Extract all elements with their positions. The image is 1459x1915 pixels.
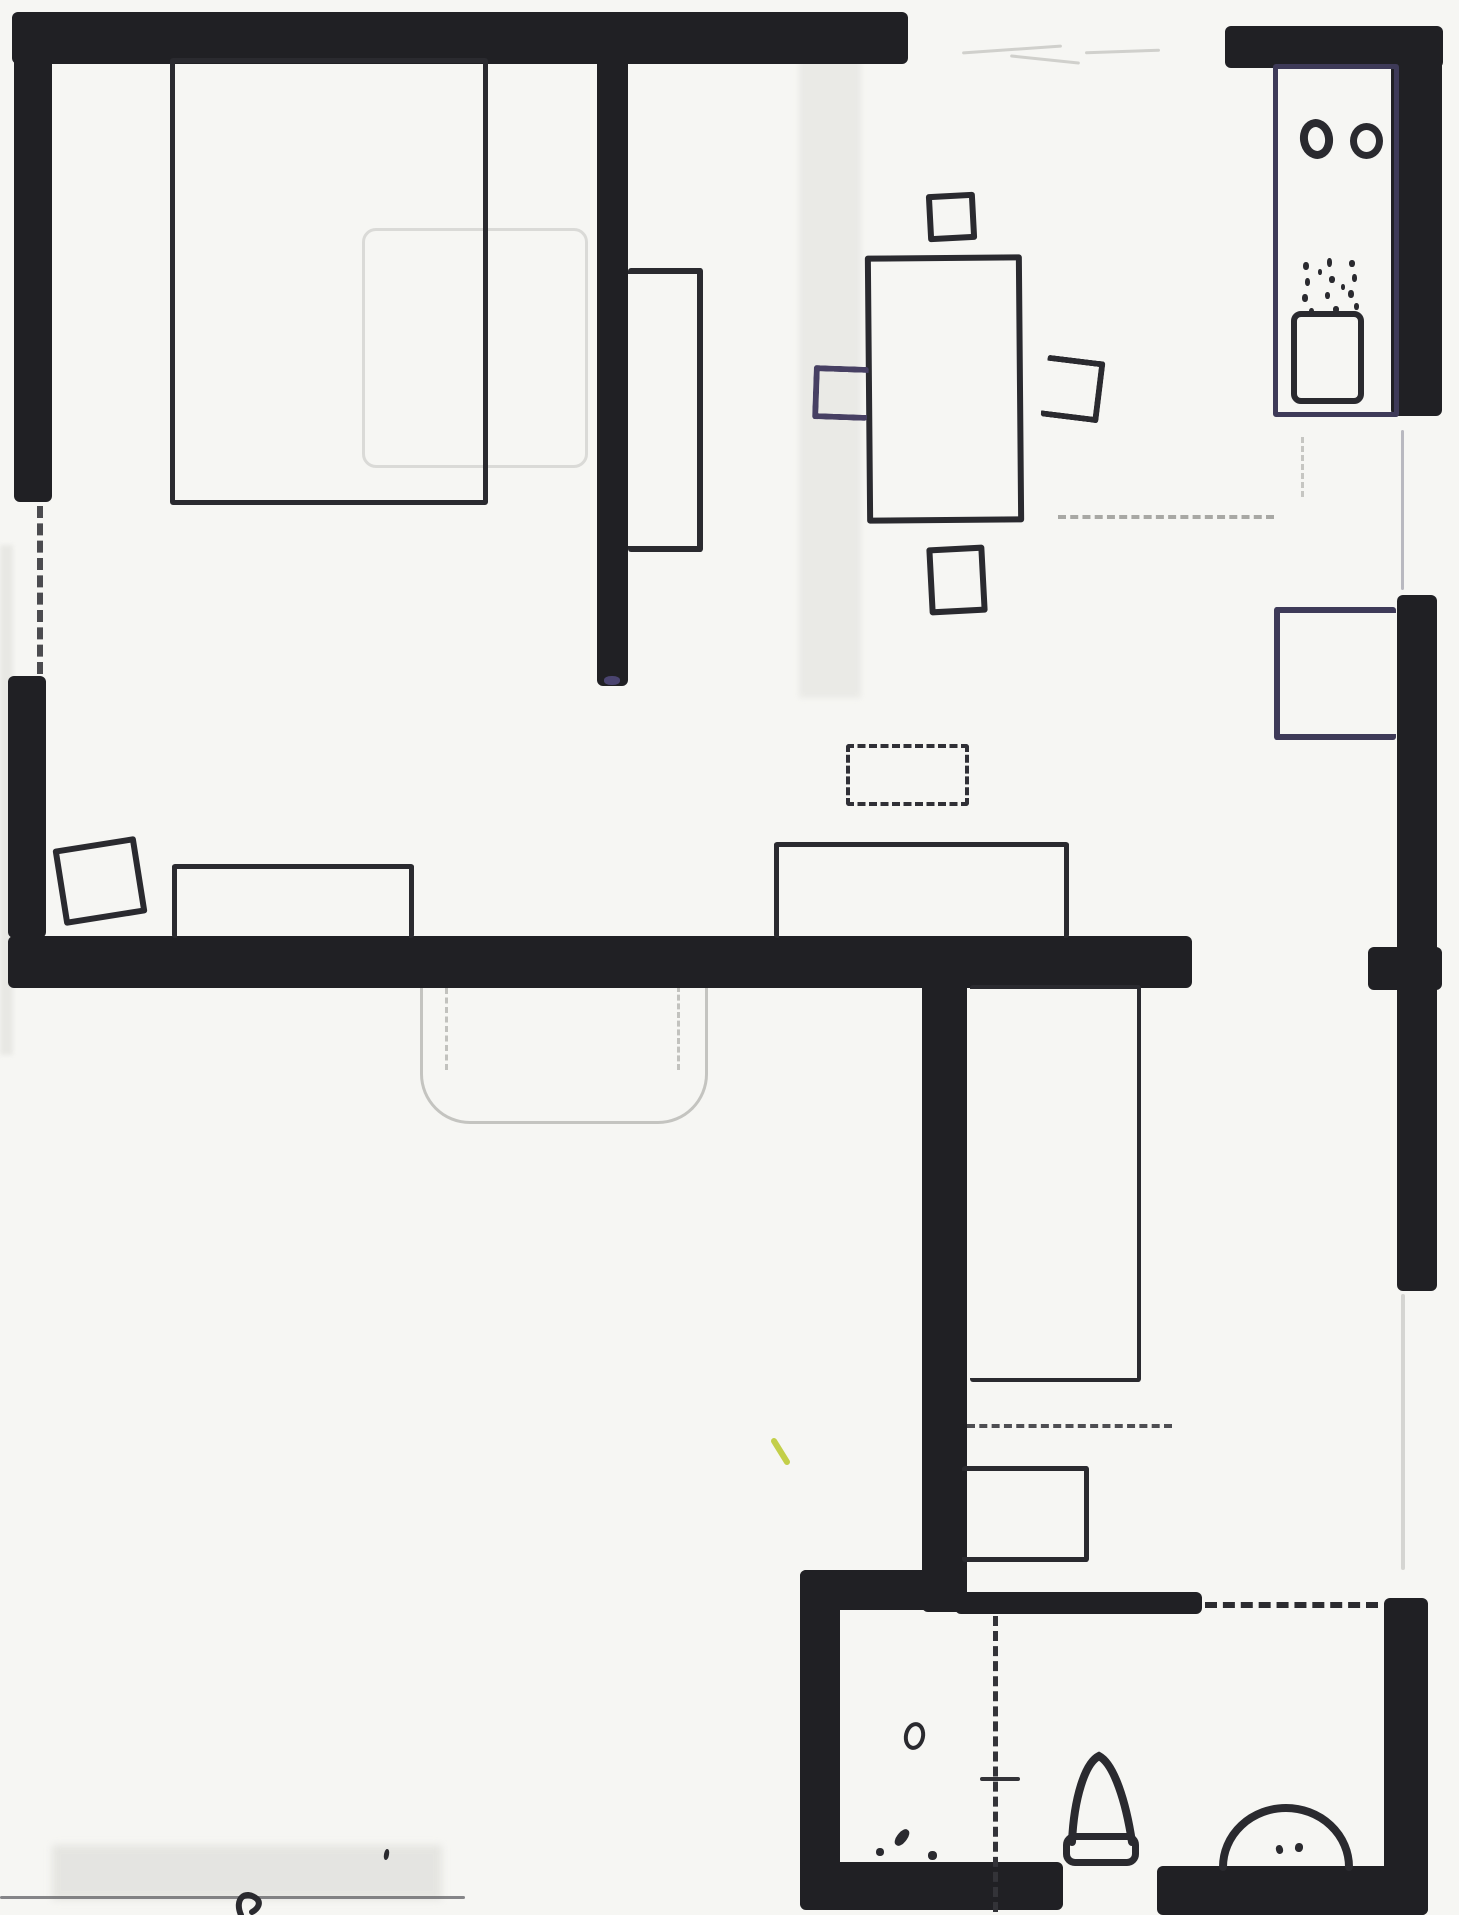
ink-blob-1 bbox=[892, 1827, 912, 1848]
storage-box-right-wall bbox=[1274, 607, 1396, 740]
closet-outline bbox=[962, 1466, 1089, 1562]
stove-burner-dot bbox=[1305, 278, 1310, 286]
page-bottom-line bbox=[0, 1896, 465, 1899]
dining-chair-right bbox=[1040, 355, 1105, 424]
rug-dashed-outline bbox=[846, 744, 969, 806]
stove-burner-dot bbox=[1329, 276, 1335, 283]
stove-burner-dot bbox=[1348, 290, 1354, 298]
ink-blob-3 bbox=[928, 1851, 937, 1860]
bed-2-outline bbox=[970, 985, 1141, 1382]
floor-plan-page bbox=[0, 0, 1459, 1915]
stove-burner-dot bbox=[1333, 306, 1339, 313]
dining-chair-top bbox=[926, 192, 977, 242]
stove-burner-dot bbox=[1352, 274, 1357, 282]
ink-dot-bottom-left bbox=[383, 1849, 390, 1861]
dining-table-outline bbox=[865, 254, 1024, 523]
stove-burner-dot bbox=[1325, 292, 1330, 299]
closet-boundary-dash bbox=[967, 1424, 1172, 1428]
bed-1-outline bbox=[170, 58, 488, 505]
furniture-layer bbox=[0, 0, 1459, 1915]
dining-chair-bottom bbox=[926, 545, 987, 616]
bath-door-tick bbox=[980, 1777, 1020, 1781]
bath-sink-faucet-left bbox=[1275, 1844, 1284, 1855]
window-dash-left-wall bbox=[37, 506, 43, 674]
bathroom-floor-drain bbox=[901, 1720, 927, 1752]
stove-burner-dot bbox=[1309, 308, 1314, 315]
wall-tip-blue-mark bbox=[604, 676, 620, 685]
stove-burner-dot bbox=[1354, 303, 1359, 310]
tv-bench-outline bbox=[774, 842, 1069, 938]
sofa-outline bbox=[172, 864, 414, 938]
ink-blob-2 bbox=[876, 1848, 884, 1856]
kitchen-boundary-dash bbox=[1058, 515, 1274, 519]
stove-burner-dot bbox=[1303, 262, 1309, 270]
armchair-outline bbox=[52, 836, 147, 926]
stove-burner-dot bbox=[1327, 258, 1332, 267]
stove-burner-dot bbox=[1349, 260, 1355, 267]
kitchen-sink-basin-right bbox=[1350, 123, 1383, 159]
toilet-tank bbox=[1063, 1833, 1139, 1866]
dining-chair-left bbox=[812, 365, 869, 421]
bath-entry-dash bbox=[1205, 1602, 1378, 1608]
stove-burner-dot bbox=[1341, 284, 1345, 290]
stove-burner-dot bbox=[1318, 269, 1322, 275]
wall-shelf-outline bbox=[628, 268, 703, 552]
window-line-right-wall bbox=[1401, 430, 1404, 590]
bath-door-dash bbox=[993, 1616, 998, 1912]
stove-burner-dot bbox=[1302, 294, 1308, 302]
kitchen-oven-outline bbox=[1291, 311, 1364, 404]
bath-sink-faucet-right bbox=[1294, 1842, 1303, 1852]
